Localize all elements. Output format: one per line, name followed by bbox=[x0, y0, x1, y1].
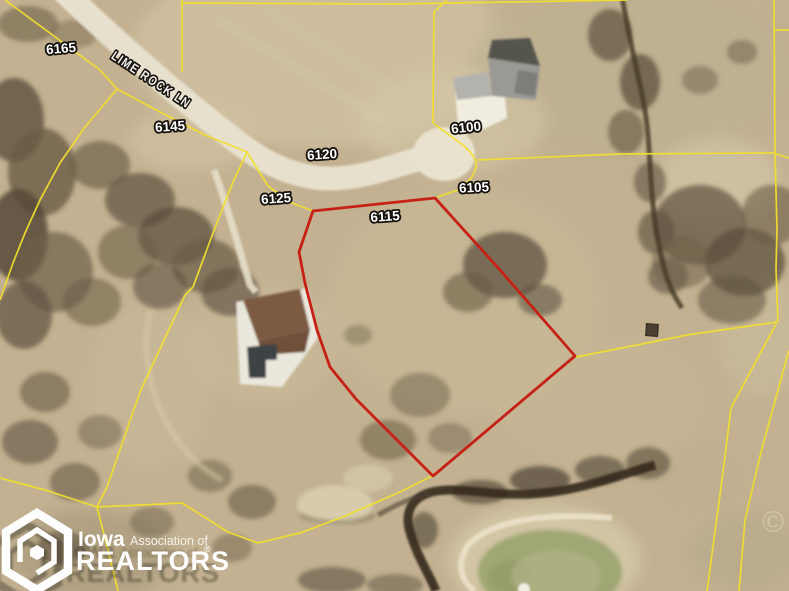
parcel-label-6145: 6145 bbox=[155, 118, 186, 135]
parcel-label-6105: 6105 bbox=[459, 179, 490, 196]
parcel-label-6115: 6115 bbox=[370, 208, 401, 225]
parcel-label-6125: 6125 bbox=[261, 190, 292, 207]
logo-registered-mark: ® bbox=[204, 544, 211, 554]
shed bbox=[646, 324, 659, 337]
parcel-label-6120: 6120 bbox=[307, 146, 338, 163]
copyright-watermark: © bbox=[762, 506, 784, 539]
parcel-label-6100: 6100 bbox=[450, 118, 481, 136]
cul-de-sac bbox=[413, 127, 475, 181]
aerial-map: 6165 6145 6120 6100 6125 6105 6115 LIME … bbox=[0, 0, 789, 591]
parcel-label-6165: 6165 bbox=[45, 40, 77, 58]
